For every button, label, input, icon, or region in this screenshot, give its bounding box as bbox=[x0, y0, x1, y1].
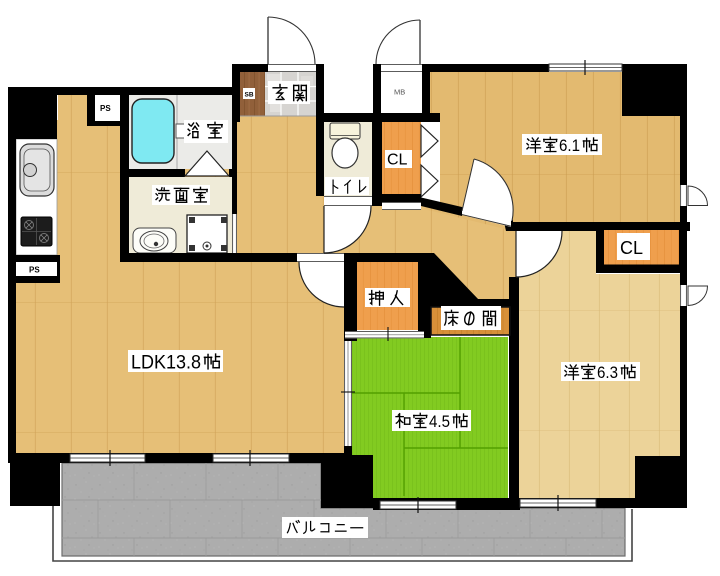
svg-text:4.5: 4.5 bbox=[429, 412, 450, 431]
svg-text:SB: SB bbox=[245, 92, 254, 99]
svg-text:LDK13.8: LDK13.8 bbox=[131, 352, 201, 374]
svg-text:PS: PS bbox=[29, 266, 40, 275]
svg-text:PS: PS bbox=[100, 104, 111, 113]
svg-text:CL: CL bbox=[387, 152, 408, 169]
svg-text:6.1: 6.1 bbox=[559, 136, 580, 155]
svg-text:CL: CL bbox=[620, 238, 643, 258]
svg-text:MB: MB bbox=[394, 88, 405, 97]
svg-text:6.3: 6.3 bbox=[597, 363, 618, 382]
